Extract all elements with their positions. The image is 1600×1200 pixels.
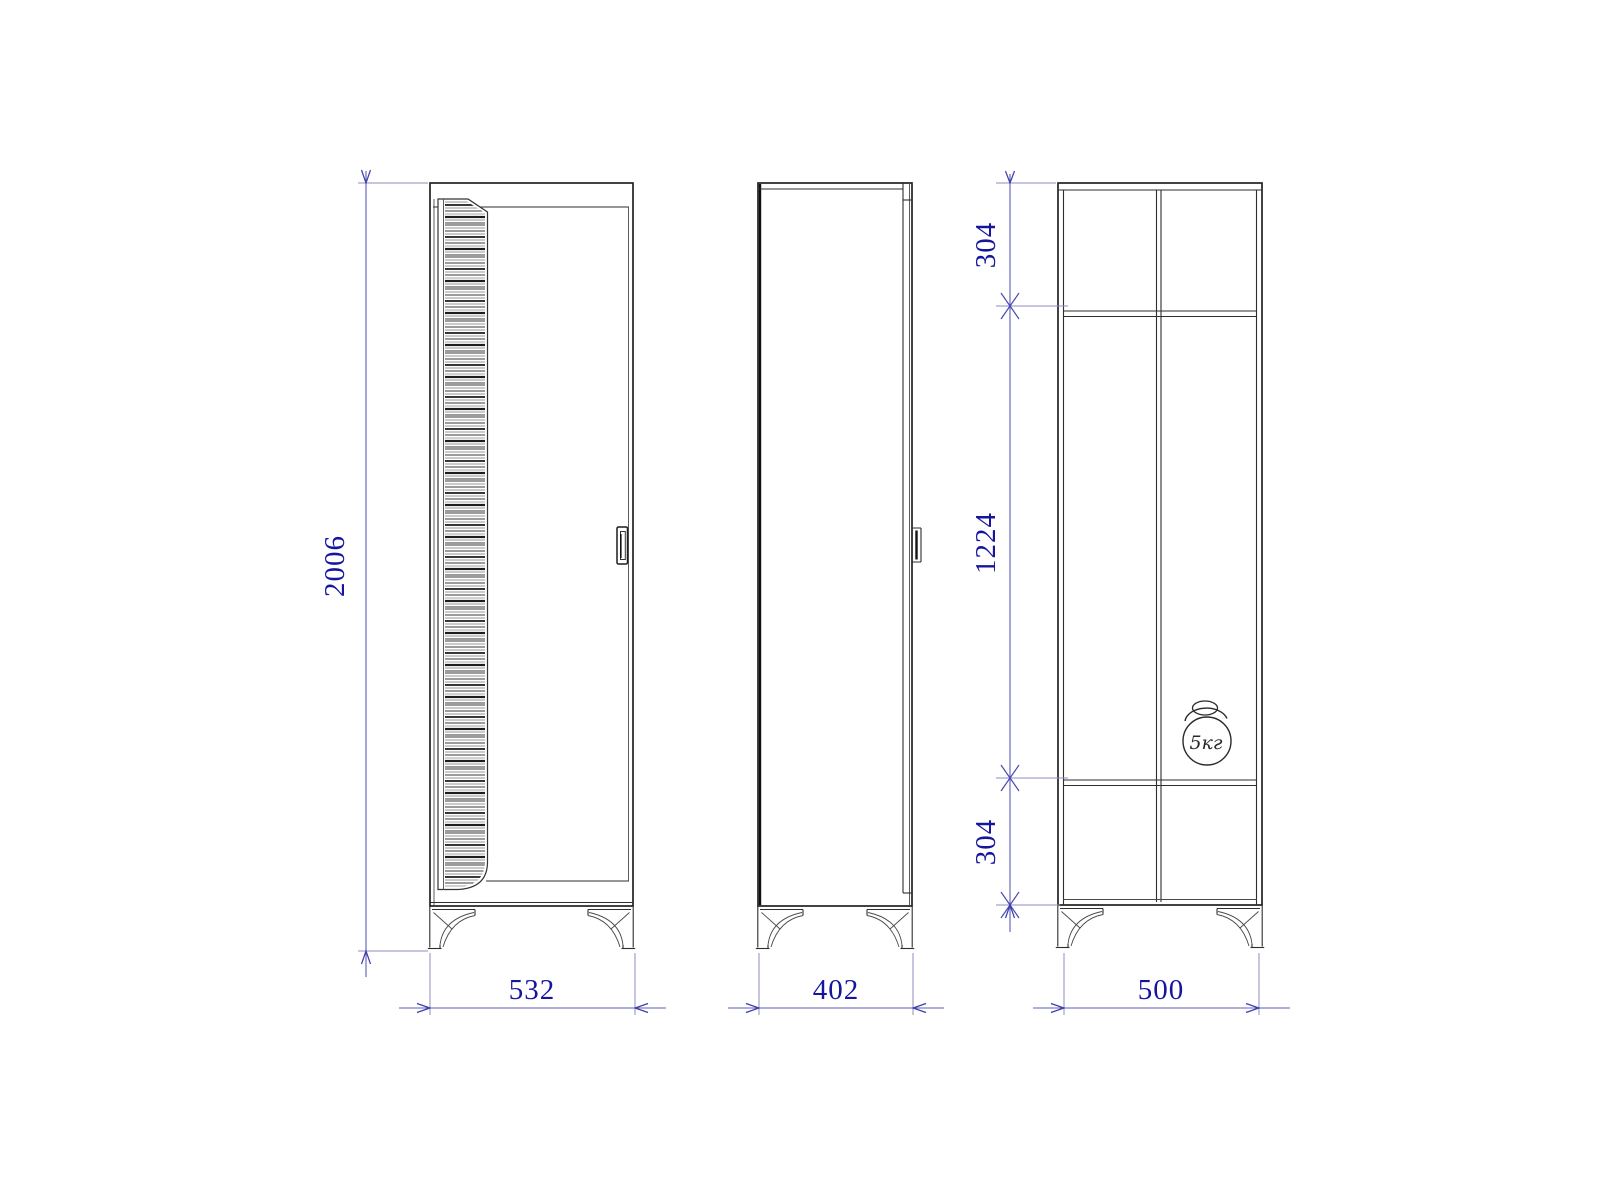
section-vertical-divider xyxy=(1157,190,1162,902)
side-legs xyxy=(756,906,914,949)
front-door-handle xyxy=(617,527,628,564)
section-carcass-outline xyxy=(1058,183,1262,905)
section-width-value: 500 xyxy=(1138,974,1185,1006)
dimension-side-depth: 402 xyxy=(728,953,944,1015)
front-width-value: 532 xyxy=(509,974,556,1006)
side-depth-value: 402 xyxy=(813,974,860,1006)
side-carcass-outline xyxy=(758,183,912,906)
overall-height-value: 2006 xyxy=(319,535,351,597)
kettlebell-icon: 5кг xyxy=(1183,701,1231,765)
dimension-overall-height: 2006 xyxy=(319,170,428,977)
section-view: 5кг xyxy=(1056,183,1264,948)
top-compartment-value: 304 xyxy=(970,222,1002,269)
middle-compartment-value: 1224 xyxy=(970,512,1002,574)
side-handle xyxy=(912,528,921,562)
technical-drawing-canvas: 5кг 2006 532 402 xyxy=(0,0,1600,1200)
dimension-compartments-chain: 304 1224 304 xyxy=(970,171,1068,932)
front-view xyxy=(428,183,635,949)
dimension-front-width: 532 xyxy=(399,953,666,1015)
section-shelf-bottom xyxy=(1063,780,1257,786)
side-view xyxy=(756,183,921,949)
front-mirror-strip xyxy=(438,199,488,890)
kettlebell-weight-label: 5кг xyxy=(1189,732,1222,754)
front-legs xyxy=(428,906,635,949)
section-shelf-top xyxy=(1063,311,1257,317)
bottom-compartment-value: 304 xyxy=(970,819,1002,866)
mirror-strip-hatch xyxy=(445,202,485,888)
dimension-section-width: 500 xyxy=(1033,953,1290,1015)
section-legs xyxy=(1056,905,1264,948)
wardrobe-drawing: 5кг 2006 532 402 xyxy=(0,0,1600,1200)
